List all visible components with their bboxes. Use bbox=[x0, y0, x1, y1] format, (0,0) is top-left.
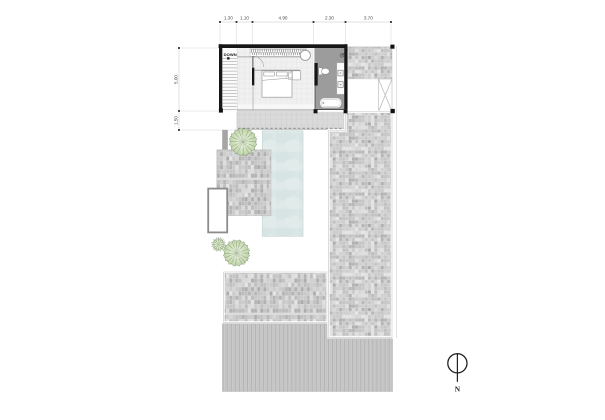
svg-text:DOWN: DOWN bbox=[224, 53, 237, 57]
svg-text:5.00: 5.00 bbox=[174, 75, 179, 84]
svg-text:2.30: 2.30 bbox=[325, 15, 334, 20]
svg-text:1.50: 1.50 bbox=[174, 116, 179, 125]
svg-text:1.30: 1.30 bbox=[224, 15, 233, 20]
svg-text:1.10: 1.10 bbox=[240, 15, 249, 20]
svg-text:4.90: 4.90 bbox=[279, 15, 288, 20]
svg-text:3.70: 3.70 bbox=[364, 15, 373, 20]
svg-text:N: N bbox=[455, 385, 461, 394]
